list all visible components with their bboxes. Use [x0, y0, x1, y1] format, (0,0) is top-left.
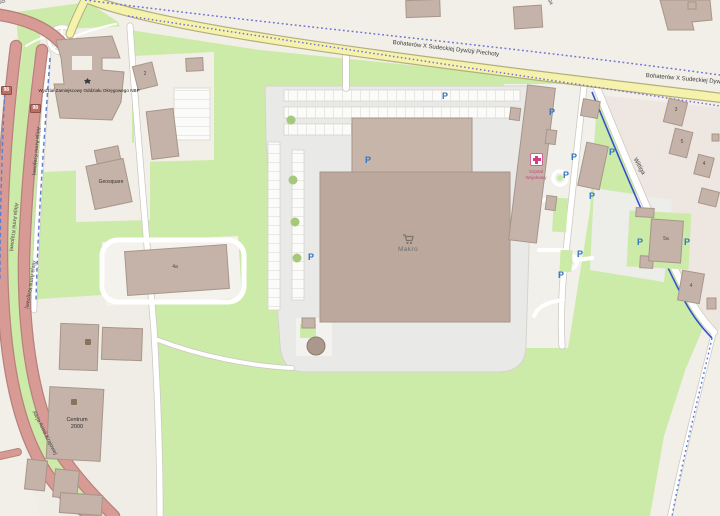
- makro-store-icon: [402, 234, 414, 245]
- building-number-4: 4: [684, 283, 698, 289]
- hospital-cross-icon: [530, 153, 543, 166]
- parking-icon-3: P: [308, 253, 314, 262]
- building-number-5a: 5a: [659, 236, 673, 242]
- poi-label-geosquare: Geosquare: [88, 179, 134, 185]
- parking-icon-5: P: [571, 153, 577, 162]
- building-number-5: 5: [675, 139, 689, 145]
- building-number-4-topright: 4: [697, 161, 711, 167]
- poi-label-centrum-1: Centrum: [54, 417, 100, 423]
- map-canvas: [0, 0, 720, 516]
- poi-label-nbp: Wydział Zamiejscowy Oddziału Okręgowego …: [30, 88, 148, 93]
- poi-label-hospital-1: Szpital: [516, 169, 556, 174]
- parking-icon-6: P: [609, 148, 615, 157]
- route-shield-98-west: 98: [1, 86, 12, 95]
- poi-label-hospital-2: Wojskowy: [516, 175, 556, 180]
- parking-icon-8: P: [589, 192, 595, 201]
- poi-label-makro: Makro: [386, 246, 430, 253]
- poi-label-centrum-2: 2000: [54, 424, 100, 430]
- parking-icon-2: P: [365, 156, 371, 165]
- building-number-3: 3: [669, 107, 683, 113]
- parking-icon-10: P: [684, 238, 690, 247]
- building-number-2: 2: [138, 71, 152, 77]
- building-nbp: [54, 36, 124, 120]
- parking-icon-1: P: [442, 92, 448, 101]
- building-4a: [125, 244, 230, 295]
- parking-icon-4: P: [549, 108, 555, 117]
- route-shield-98-east: 98: [30, 104, 41, 113]
- osm-map[interactable]: Bohaterów X Sudeckiej Dywizji Piechoty B…: [0, 0, 720, 516]
- parking-icon-12: P: [558, 271, 564, 280]
- round-structure: [307, 337, 325, 355]
- building-makro-upper: [352, 118, 472, 175]
- parking-icon-11: P: [577, 250, 583, 259]
- building-number-4a: 4a: [168, 264, 182, 270]
- parking-icon-9: P: [637, 238, 643, 247]
- shop-icon-1: [85, 339, 91, 345]
- shop-icon-2: [71, 399, 77, 405]
- parking-icon-7: P: [563, 171, 569, 180]
